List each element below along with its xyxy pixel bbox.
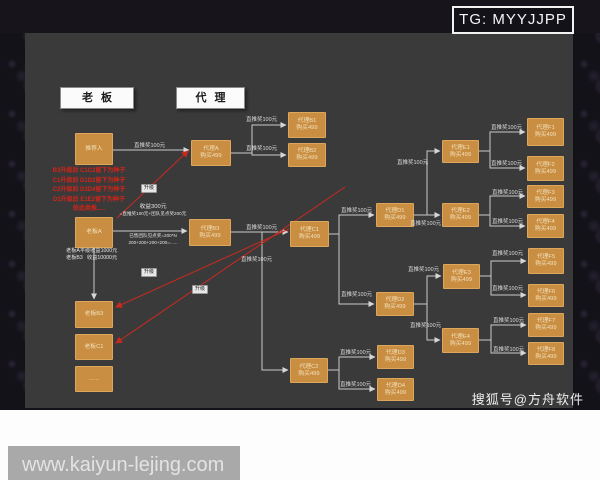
edge-line <box>479 196 525 215</box>
edge-label: 直推奖100元 <box>246 223 277 231</box>
income-note-above: 收益300元=直推奖100元+团队见点奖200元 <box>112 203 194 217</box>
node-agent-d1: 代理D1购买499 <box>376 203 414 227</box>
node-agent-e3: 代理E3购买499 <box>443 264 480 289</box>
income-note-line: =直推奖100元+团队见点奖200元 <box>112 211 194 217</box>
edge-label: 直推奖100元 <box>241 255 272 263</box>
upgrade-label: 升级 <box>192 285 208 294</box>
edge-label: 直推奖100元 <box>492 249 523 257</box>
screenshot-canvas: 老板 代理 推荐人老板A老板B3老板C1......代理A购买499代理B3购买… <box>0 0 600 480</box>
upgrade-label: 升级 <box>141 268 157 277</box>
edge-line <box>328 357 375 370</box>
edge-line <box>427 151 440 215</box>
souhu-watermark: 搜狐号@方舟软件 <box>472 389 584 408</box>
edge-label: 直推奖100元 <box>491 159 522 167</box>
edge-label: 直推奖100元 <box>341 206 372 214</box>
edge-label: 直推奖100元 <box>408 265 439 273</box>
edge-label: 直推奖100元 <box>491 123 522 131</box>
node-boss-more: ...... <box>75 366 113 392</box>
node-agent-d3: 代理D3购买499 <box>377 345 414 369</box>
url-watermark: www.kaiyun-lejing.com <box>8 446 240 480</box>
node-agent-e4: 代理E4购买499 <box>442 328 479 353</box>
edge-line <box>480 261 526 276</box>
node-boss-b3: 老板B3 <box>75 301 113 328</box>
node-agent-c2: 代理C2购买499 <box>290 358 328 383</box>
node-agent-d2: 代理D2购买499 <box>376 292 414 316</box>
edge-label: 直推奖100元 <box>492 217 523 225</box>
node-boss-c1: 老板C1 <box>75 334 113 360</box>
edge-label: 直推奖100元 <box>410 219 441 227</box>
edge-label: 直推奖100元 <box>492 284 523 292</box>
edge-label: 直推奖100元 <box>397 158 428 166</box>
edge-line <box>252 153 286 155</box>
node-agent-f2: 代理F2购买499 <box>527 156 564 181</box>
income-note-line: 收益300元 <box>112 203 194 211</box>
income-note-line: 200+200+200+200=...... <box>112 240 194 247</box>
boss-income-line: 老板A平级收益1000元 <box>66 248 117 255</box>
edge-line <box>414 276 441 304</box>
boss-income-note: 老板A平级收益1000元老板B3 收益10000元 <box>66 248 117 262</box>
node-agent-c1: 代理C1购买499 <box>290 221 329 247</box>
edge-label: 直推奖100元 <box>341 290 372 298</box>
node-referrer: 推荐人 <box>75 133 113 165</box>
edge-label: 直推奖100元 <box>410 321 441 329</box>
edge-line <box>479 132 525 151</box>
node-agent-f8: 代理F8购买499 <box>528 342 564 365</box>
node-agent-f3: 代理F3购买499 <box>527 185 564 208</box>
node-agent-b3: 代理B3购买499 <box>189 219 231 246</box>
income-note-below: 已售团队见点奖=200*N200+200+200+200=...... <box>112 233 194 246</box>
edge-line <box>329 215 374 234</box>
edge-label: 直推奖100元 <box>246 115 277 123</box>
node-agent-b2: 代理B2购买499 <box>288 143 326 167</box>
upgrade-label: 升级 <box>141 184 157 193</box>
boss-income-line: 老板B3 收益10000元 <box>66 255 117 262</box>
edge-label: 直推奖100元 <box>246 144 277 152</box>
edge-line <box>479 325 526 340</box>
node-agent-f5: 代理F5购买499 <box>528 248 564 274</box>
edge-label: 直推奖100元 <box>340 348 371 356</box>
bottom-white-band: www.kaiyun-lejing.com <box>0 410 600 480</box>
edge-label: 直推奖100元 <box>134 141 165 149</box>
node-agent-e1: 代理E1购买499 <box>442 140 479 163</box>
node-agent-a: 代理A购买499 <box>191 140 231 166</box>
edge-label: 直推奖100元 <box>493 316 524 324</box>
red-note-line: B3升级后 C1C2留下为种子 <box>38 167 140 177</box>
edge-label: 直推奖100元 <box>492 188 523 196</box>
edge-line <box>262 232 288 370</box>
node-agent-b1: 代理B1购买499 <box>288 112 326 138</box>
red-note-line: C2升级后 D3D4留下为种子 <box>38 186 140 196</box>
tg-watermark-badge: TG: MYYJJPP <box>452 6 574 34</box>
red-note-line: C1升级后 D1D2留下为种子 <box>38 177 140 187</box>
node-agent-f4: 代理F4购买499 <box>527 214 564 238</box>
node-boss-a: 老板A <box>75 217 113 248</box>
edge-label: 直推奖100元 <box>340 380 371 388</box>
node-agent-d4: 代理D4购买499 <box>377 378 414 401</box>
node-agent-f1: 代理F1购买499 <box>527 118 564 146</box>
node-agent-f7: 代理F7购买499 <box>528 313 564 337</box>
edge-label: 直推奖100元 <box>493 345 524 353</box>
node-agent-f6: 代理F6购买499 <box>528 284 564 307</box>
node-agent-e2: 代理E2购买499 <box>442 203 479 227</box>
